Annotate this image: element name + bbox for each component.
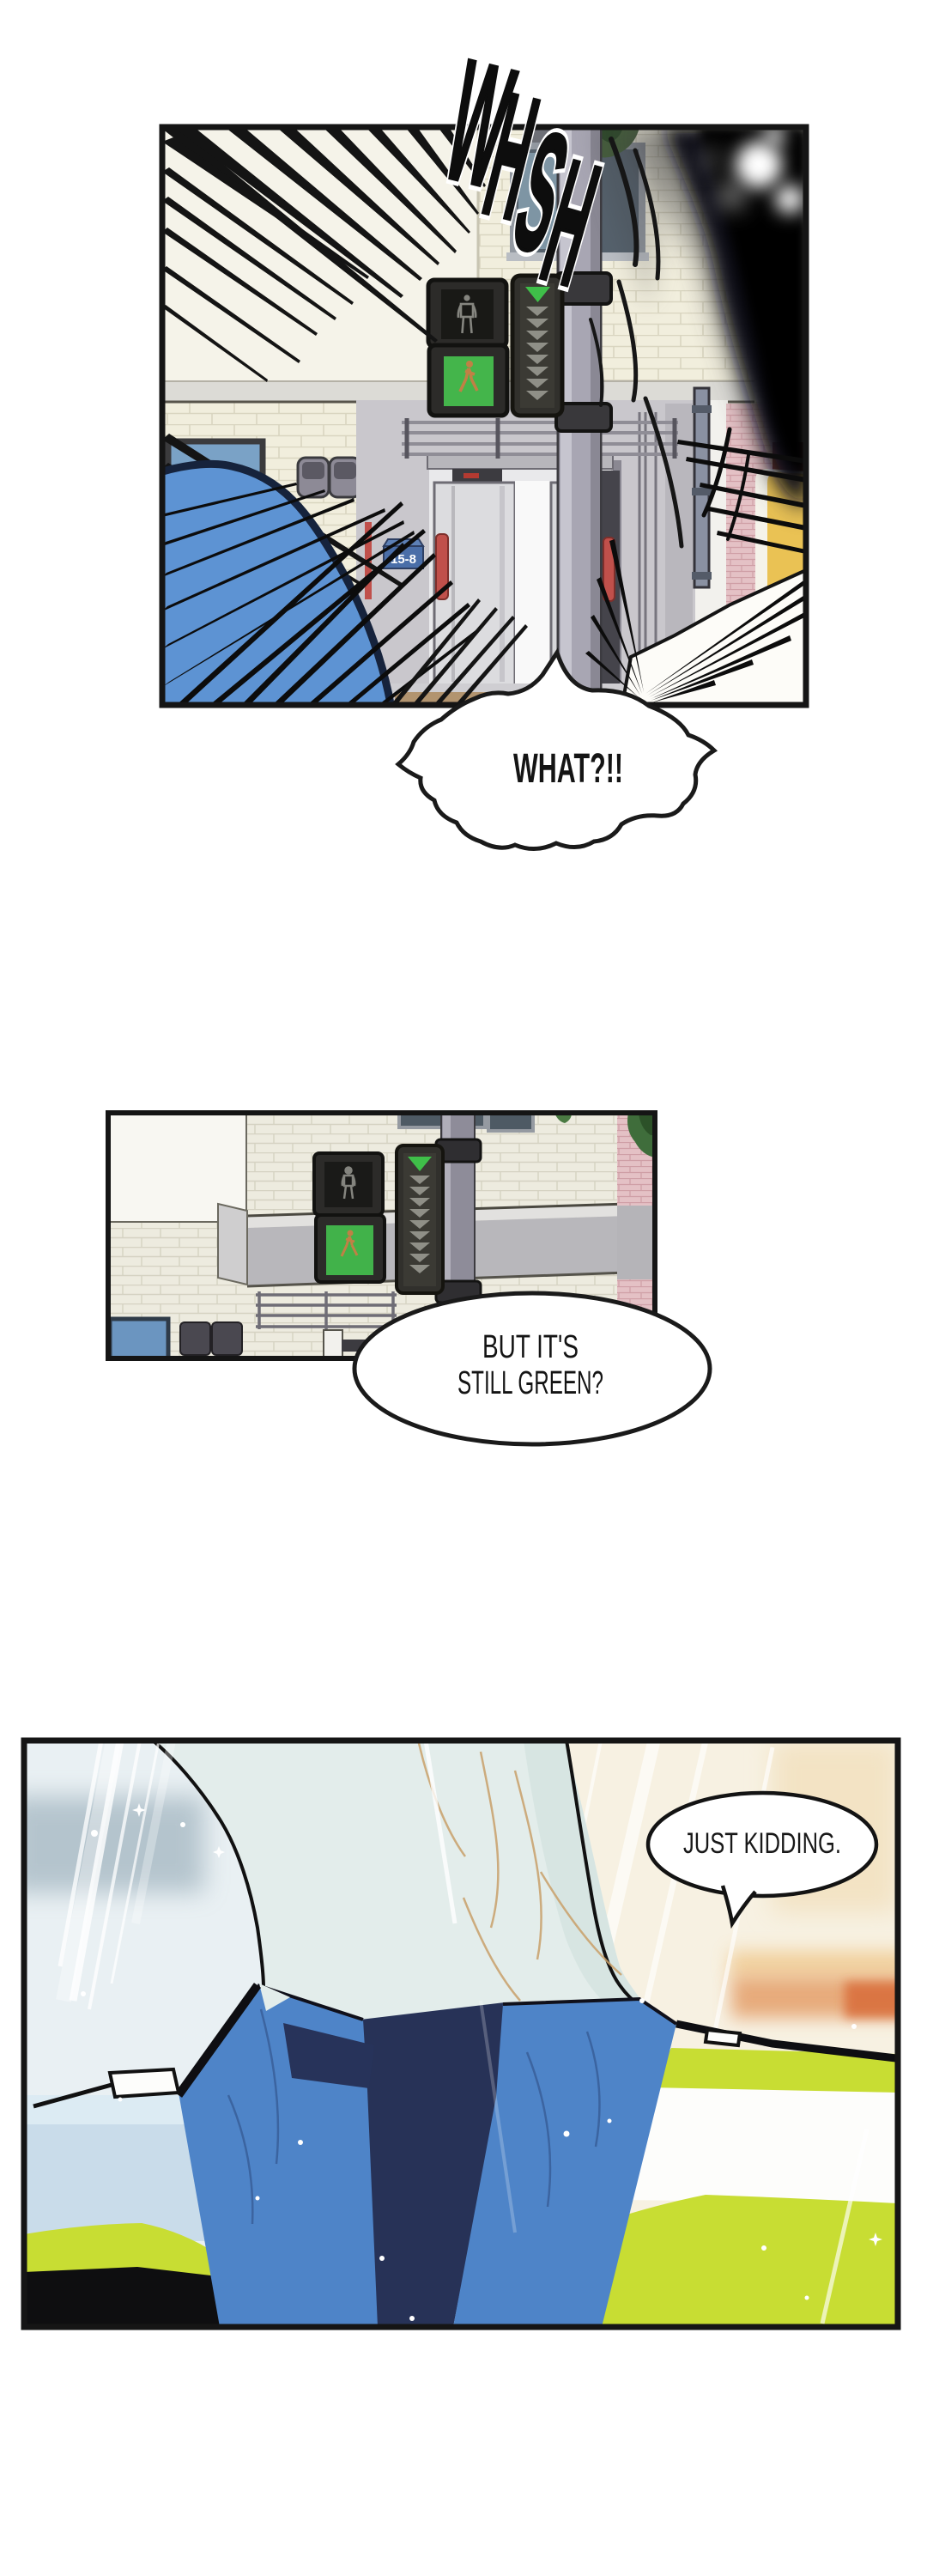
svg-text:STILL GREEN?: STILL GREEN?	[457, 1365, 603, 1401]
svg-text:BUT IT'S: BUT IT'S	[482, 1329, 579, 1365]
svg-text:WHAT?!!: WHAT?!!	[513, 746, 623, 792]
svg-text:JUST KIDDING.: JUST KIDDING.	[683, 1827, 841, 1860]
